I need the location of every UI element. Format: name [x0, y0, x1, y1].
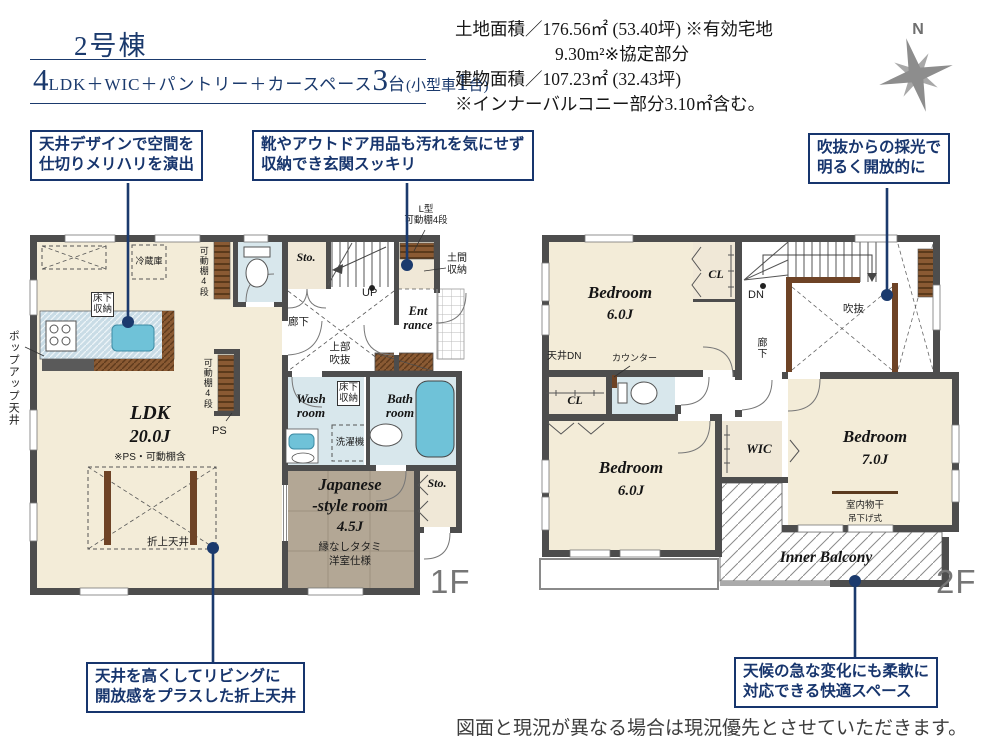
callout-coffered-ceiling: 天井を高くしてリビングに 開放感をプラスした折上天井 [86, 662, 305, 713]
spec-num-4: 4 [33, 62, 49, 98]
bathroom-label: Bath room [372, 392, 428, 421]
l-shelf-line2: 可動棚4段 [395, 215, 457, 226]
flyer-page: 2号棟 4 LDK＋WIC＋パントリー＋カースペース 3 台 (小型車 1 台)… [0, 0, 1000, 750]
bedroom2-size: 6.0J [576, 483, 686, 500]
inner-balcony-label: Inner Balcony [746, 549, 906, 566]
stairs-2f [744, 241, 876, 282]
toilet-tank-icon [618, 383, 627, 403]
compass-n-label: N [912, 21, 924, 38]
void-above-line1: 上部 [318, 341, 362, 354]
callout2-line1: 靴やアウトドア用品も汚れを気にせず [261, 135, 525, 155]
ceiling-beam [190, 471, 197, 545]
toilet-bowl-icon [631, 382, 657, 404]
balcony-rail-dark [830, 580, 949, 587]
ldk-note: ※PS・可動棚含 [90, 452, 210, 464]
hanging-type-label: 吊下げ式 [833, 513, 897, 523]
bath-stool-icon [370, 424, 402, 446]
doma-storage-label: 土間 収納 [447, 253, 467, 277]
underfloor-storage-label-kitchen: 床下 収納 [91, 292, 114, 317]
hallway-label-1f: 廊下 [288, 316, 309, 329]
callout2-line2: 収納でき玄関スッキリ [261, 155, 525, 175]
toilet-2f [618, 382, 657, 404]
spec-text-2: 台 [388, 70, 406, 95]
storage-label-1f-bottom: Sto. [416, 477, 458, 490]
callout4-line2: 開放感をプラスした折上天井 [95, 687, 296, 707]
callout5-line1: 天候の急な変化にも柔軟に [743, 662, 929, 682]
toilet-tank-icon [244, 247, 270, 257]
japanese-room-line1: Japanese [292, 476, 408, 494]
spec-num-3: 3 [372, 62, 388, 98]
stairs-arrowhead [332, 264, 343, 274]
void-above-label: 上部 吹抜 [318, 341, 362, 366]
entrance-line1: Ent [390, 305, 446, 319]
bathroom-line1: Bath [372, 392, 428, 406]
building-title: 2号棟 [74, 24, 148, 63]
kitchen-counter [40, 311, 174, 371]
bedroom1-size: 6.0J [565, 307, 675, 324]
compass-icon: N [866, 12, 966, 116]
sink-icon [112, 325, 154, 351]
washroom-line1: Wash [284, 392, 338, 406]
void-above-line2: 吹抜 [318, 354, 362, 367]
callout4-line1: 天井を高くしてリビングに [95, 667, 296, 687]
counter-label: カウンター [612, 353, 657, 364]
callout3-line2: 明るく開放的に [817, 158, 941, 178]
callout1-line2: 仕切りメリハリを演出 [39, 155, 194, 175]
closet-label-1: CL [698, 268, 734, 281]
closet-label-2: CL [557, 394, 593, 407]
underfloor2-line2: 収納 [339, 393, 358, 404]
area-info: 土地面積／176.56㎡ (53.40坪) ※有効宅地 9.30m²※協定部分 … [455, 17, 773, 117]
spec-text-1: LDK＋WIC＋パントリー＋カースペース [49, 70, 373, 95]
void-label: 吹抜 [843, 303, 864, 316]
up-label: UP [362, 287, 377, 300]
floor-label-1f: 1F [430, 563, 471, 601]
doma-line1: 土間 [447, 253, 467, 265]
ldk-size: 20.0J [100, 427, 200, 447]
floor-label-2f: 2F [936, 563, 977, 601]
indoor-drying-label: 室内物干 [833, 500, 897, 511]
drying-bar-icon [832, 491, 898, 494]
bedroom3-name: Bedroom [820, 428, 930, 447]
japanese-room-line2: -style room [292, 497, 408, 515]
shelf-label-upper: 可動棚4段 [198, 246, 209, 306]
l-shelf-line1: L型 [395, 204, 457, 215]
tatami-note-line1: 縁なしタタミ [292, 541, 408, 554]
land-area-line2: 9.30m²※協定部分 [455, 42, 773, 67]
stove-icon [46, 321, 76, 351]
ceiling-beam [104, 471, 111, 545]
l-shelf-label: L型 可動棚4段 [395, 204, 457, 227]
balcony-strip [540, 559, 718, 589]
hallway-label-2f: 廊下 [754, 337, 766, 373]
railing-2f [786, 277, 898, 372]
title-rule-bottom [30, 103, 426, 104]
bedroom3-size: 7.0J [820, 452, 930, 469]
dn-label: DN [748, 289, 764, 302]
land-area-line1: 土地面積／176.56㎡ (53.40坪) ※有効宅地 [455, 17, 773, 42]
underfloor2-line1: 床下 [339, 382, 358, 393]
entrance-label: Ent rance [390, 305, 446, 333]
underfloor-line2: 収納 [93, 304, 112, 315]
callout3-line1: 吹抜からの採光で [817, 138, 941, 158]
washroom-label: Wash room [284, 392, 338, 421]
bedroom1-name: Bedroom [565, 284, 675, 303]
entrance-line2: rance [390, 319, 446, 333]
doma-line2: 収納 [447, 265, 467, 277]
ceiling-dn-label: 天井DN [547, 351, 581, 363]
compass-star [869, 28, 962, 116]
wic-label: WIC [735, 442, 783, 456]
underfloor-line1: 床下 [93, 293, 112, 304]
fridge-label: 冷蔵庫 [132, 256, 166, 267]
shelf-2f [918, 249, 934, 297]
spec-text-3: (小型車 [406, 74, 456, 95]
building-area-line1: 建物面積／107.23㎡ (32.43坪) [455, 67, 773, 92]
popup-ceiling-label: ポップアップ天井 [6, 330, 19, 450]
balcony-rail [720, 581, 835, 586]
washer-label: 洗濯機 [332, 437, 368, 448]
japanese-room-size: 4.5J [292, 519, 408, 536]
callout-inner-balcony: 天候の急な変化にも柔軟に 対応できる快適スペース [734, 657, 938, 708]
callout-ceiling-design: 天井デザインで空間を 仕切りメリハリを演出 [30, 130, 203, 181]
callout5-line2: 対応できる快適スペース [743, 682, 929, 702]
toilet-bowl-icon [246, 259, 268, 287]
callout-entrance-storage: 靴やアウトドア用品も汚れを気にせず 収納でき玄関スッキリ [252, 130, 534, 181]
title-rule-top [30, 59, 426, 60]
shelf-label-lower: 可動棚4段 [202, 358, 213, 416]
building-area-line2: ※インナーバルコニー部分3.10㎡含む。 [455, 92, 773, 117]
callout1-line1: 天井デザインで空間を [39, 135, 194, 155]
storage-label-1f-top: Sto. [286, 251, 326, 264]
bedroom2-name: Bedroom [576, 459, 686, 478]
underfloor-storage-label-wash: 床下 収納 [337, 381, 360, 406]
disclaimer-text: 図面と現況が異なる場合は現況優先とさせていただきます。 [456, 713, 967, 740]
tatami-note-line2: 洋室仕様 [292, 555, 408, 568]
ps-label: PS [212, 425, 227, 438]
ldk-name: LDK [100, 402, 200, 424]
layout-spec: 4 LDK＋WIC＋パントリー＋カースペース 3 台 (小型車 1 台) [33, 62, 488, 98]
callout-void-light: 吹抜からの採光で 明るく開放的に [808, 133, 950, 184]
washroom-line2: room [284, 406, 338, 420]
coffered-ceiling-label: 折上天井 [136, 536, 200, 549]
bathroom-line2: room [372, 406, 428, 420]
stairs-1f [328, 241, 388, 287]
